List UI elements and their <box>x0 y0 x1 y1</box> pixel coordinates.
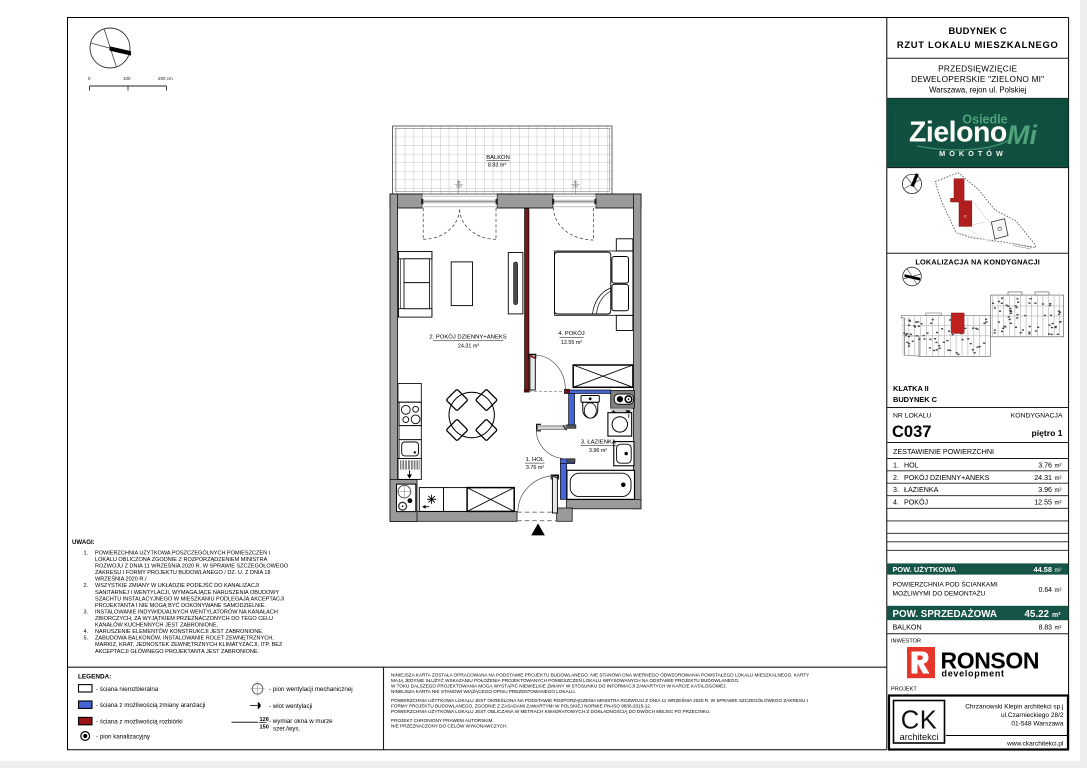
svg-text:Mi: Mi <box>1007 120 1037 150</box>
svg-text:230: 230 <box>456 185 462 189</box>
svg-text:W TOKU DALSZEGO PROJEKTOWANIA: W TOKU DALSZEGO PROJEKTOWANIA MOGĄ WYSTĄ… <box>391 683 727 689</box>
svg-text:NR LOKALU: NR LOKALU <box>893 413 932 420</box>
svg-text:INWESTOR: INWESTOR <box>891 639 921 645</box>
svg-text:POWIERZCHNIA POD ŚCIANKAMI: POWIERZCHNIA POD ŚCIANKAMI <box>893 580 998 589</box>
svg-text:piętro 1: piętro 1 <box>1031 428 1062 438</box>
svg-text:m²: m² <box>1055 463 1062 469</box>
svg-text:- pion kanalizacyjny: - pion kanalizacyjny <box>96 734 151 741</box>
svg-text:Chrzanowski Klepin architekci: Chrzanowski Klepin architekci sp.j <box>965 704 1063 711</box>
svg-text:m²: m² <box>1055 488 1062 494</box>
svg-text:NARUSZENIE ELEMENTÓW KONSTRUKC: NARUSZENIE ELEMENTÓW KONSTRUKCJI JEST ZA… <box>95 628 264 635</box>
svg-text:NIE PRZEZNACZONY DO CELÓW WYKO: NIE PRZEZNACZONY DO CELÓW WYKONAWCZYCH. <box>391 723 508 729</box>
svg-text:3.76 m²: 3.76 m² <box>526 465 544 471</box>
svg-text:DEWELOPERSKIE "ZIELONO MI": DEWELOPERSKIE "ZIELONO MI" <box>911 74 1044 84</box>
svg-text:8.83 m²: 8.83 m² <box>488 162 506 168</box>
svg-text:3.96 m²: 3.96 m² <box>589 448 607 454</box>
svg-text:1.: 1. <box>893 461 899 469</box>
svg-text:01-548 Warszawa: 01-548 Warszawa <box>1011 721 1064 728</box>
svg-text:SANITARNEJ I WENTYLACJI, WYMAG: SANITARNEJ I WENTYLACJI, WYMAGAJĄCE NARU… <box>95 590 279 596</box>
svg-text:100: 100 <box>123 76 131 81</box>
svg-text:PROJEKT: PROJEKT <box>891 687 917 693</box>
svg-text:3.: 3. <box>893 486 899 494</box>
svg-text:- ściana nierozbieralna: - ściana nierozbieralna <box>96 686 159 693</box>
svg-text:- pion wentylacji mechanicznej: - pion wentylacji mechanicznej <box>269 686 353 693</box>
svg-text:CK: CK <box>901 707 937 735</box>
svg-text:200 cm: 200 cm <box>158 76 173 81</box>
svg-text:BALKON: BALKON <box>486 155 510 161</box>
svg-text:- ściana z możliwością rozbiór: - ściana z możliwością rozbiórki <box>96 719 183 726</box>
svg-text:LOKALU OBLICZONA ZGODNIE Z ROZ: LOKALU OBLICZONA ZGODNIE Z ROZPORZĄDZENI… <box>95 557 268 563</box>
svg-text:0.64: 0.64 <box>1039 587 1053 594</box>
svg-text:12.55: 12.55 <box>1034 499 1052 507</box>
svg-text:WSZYSTKIE ZMIANY W UKŁADZIE PO: WSZYSTKIE ZMIANY W UKŁADZIE PODEJŚĆ DO K… <box>95 581 260 589</box>
svg-text:KONDYGNACJA: KONDYGNACJA <box>1011 413 1063 420</box>
svg-text:FORMY PROJEKTU BUDOWLANEGO, ZG: FORMY PROJEKTU BUDOWLANEGO, ZGODNIE Z ZA… <box>391 704 651 709</box>
svg-text:POW. UŻYTKOWA: POW. UŻYTKOWA <box>893 565 957 574</box>
svg-text:- wymiar okna w murze: - wymiar okna w murze <box>269 718 333 725</box>
svg-text:4. POKÓJ: 4. POKÓJ <box>558 330 585 337</box>
svg-text:ul.Czarnieckiego 28/2: ul.Czarnieckiego 28/2 <box>1001 712 1064 719</box>
svg-text:C037: C037 <box>892 423 931 441</box>
svg-text:development: development <box>942 669 1005 679</box>
svg-text:MOŻLIWYMI DO DEMONTAŻU: MOŻLIWYMI DO DEMONTAŻU <box>893 589 986 598</box>
svg-text:3.96: 3.96 <box>1038 486 1052 494</box>
svg-text:4.: 4. <box>84 629 89 635</box>
svg-text:24.31: 24.31 <box>1034 474 1052 482</box>
svg-text:POWIERZCHNIA UŻYTKOWA LOKALU J: POWIERZCHNIA UŻYTKOWA LOKALU JEST OBLICZ… <box>391 707 711 714</box>
svg-text:MARKIZ, KRAT, JEDNOSTEK ZEWNĘT: MARKIZ, KRAT, JEDNOSTEK ZEWNĘTRZNYCH KLI… <box>95 642 283 648</box>
svg-text:m²: m² <box>1055 501 1062 507</box>
svg-text:2.: 2. <box>84 583 89 589</box>
svg-text:architekci: architekci <box>900 732 939 742</box>
svg-text:12.55 m²: 12.55 m² <box>561 340 582 346</box>
svg-text:5.: 5. <box>84 636 89 642</box>
svg-text:AKCEPTACJI GŁÓWNEGO PROJEKTANT: AKCEPTACJI GŁÓWNEGO PROJEKTANTA JEST ZAB… <box>95 648 260 655</box>
svg-text:m²: m² <box>1052 612 1061 619</box>
svg-text:BALKON: BALKON <box>893 623 922 632</box>
svg-text:4.: 4. <box>893 499 899 507</box>
svg-text:POWIERZCHNIA UŻYTKOWA POSZCZEG: POWIERZCHNIA UŻYTKOWA POSZCZEGÓLNYCH POM… <box>95 550 271 557</box>
svg-text:m²: m² <box>1055 588 1062 594</box>
svg-text:44.58: 44.58 <box>1034 565 1053 574</box>
svg-text:ŁAZIENKA: ŁAZIENKA <box>904 486 939 494</box>
svg-text:m²: m² <box>1055 476 1062 482</box>
svg-text:- ściana z możliwością zmiany: - ściana z możliwością zmiany aranżacji <box>96 702 205 709</box>
svg-text:www.ckarchitekci.pl: www.ckarchitekci.pl <box>1006 741 1064 748</box>
svg-text:MOKOTÓW: MOKOTÓW <box>939 149 1007 158</box>
svg-text:2.: 2. <box>893 474 899 482</box>
svg-text:SZACHTU INSTALACYJNEGO W MIESZ: SZACHTU INSTALACYJNEGO W MIESZKANIU PODL… <box>95 596 285 602</box>
svg-text:3.: 3. <box>84 610 89 616</box>
svg-text:BUDYNEK C: BUDYNEK C <box>893 395 938 404</box>
svg-text:24.31 m²: 24.31 m² <box>458 344 479 350</box>
svg-text:ZAKRESU I FORMY PROJEKTU BUDOW: ZAKRESU I FORMY PROJEKTU BUDOWLANEGO / D… <box>95 570 271 576</box>
svg-text:PROJEKTANTA I NIE MOGĄ BYĆ DOK: PROJEKTANTA I NIE MOGĄ BYĆ DOKONYWANE SA… <box>95 602 266 609</box>
svg-text:45.22: 45.22 <box>1024 609 1049 620</box>
svg-text:POWIERZCHNIA UŻYTKOWA LOKALU J: POWIERZCHNIA UŻYTKOWA LOKALU JEST OKREŚL… <box>391 696 808 703</box>
svg-text:3.76: 3.76 <box>1038 461 1052 469</box>
svg-text:PRZEDSIĘWZIĘCIE: PRZEDSIĘWZIĘCIE <box>938 64 1017 74</box>
svg-text:8.83: 8.83 <box>1039 625 1053 632</box>
svg-text:POKÓJ DZIENNY+ANEKS: POKÓJ DZIENNY+ANEKS <box>904 473 990 482</box>
svg-text:INSTALOWANIE INDYWIDUALNYCH WE: INSTALOWANIE INDYWIDUALNYCH WENTYLATORÓW… <box>95 609 278 616</box>
svg-text:HOL: HOL <box>904 461 919 469</box>
svg-text:1. HOL: 1. HOL <box>525 457 544 463</box>
svg-text:Zielono: Zielono <box>909 117 1007 149</box>
svg-text:m²: m² <box>1055 568 1062 574</box>
svg-text:szer./wys.: szer./wys. <box>273 725 300 732</box>
svg-text:ZESTAWIENIE POWIERZCHNI: ZESTAWIENIE POWIERZCHNI <box>893 447 994 456</box>
svg-text:NINIEJSZA KARTA NIE STANOWI WI: NINIEJSZA KARTA NIE STANOWI WIĄŻĄCEGO OP… <box>391 688 576 694</box>
svg-text:WRZEŚNIA 2020 R./: WRZEŚNIA 2020 R./ <box>95 575 147 583</box>
svg-text:LOKALIZACJA NA KONDYGNACJI: LOKALIZACJA NA KONDYGNACJI <box>915 258 1040 267</box>
svg-text:POKÓJ: POKÓJ <box>904 498 928 507</box>
svg-text:MAJĄ JEDYNIE SŁUŻYĆ WSKAZANIU: MAJĄ JEDYNIE SŁUŻYĆ WSKAZANIU POŁOŻENIA … <box>391 677 739 683</box>
svg-text:POW. SPRZEDAŻOWA: POW. SPRZEDAŻOWA <box>893 609 998 620</box>
svg-text:- wlot wentylacji: - wlot wentylacji <box>269 703 312 710</box>
svg-text:UWAGI:: UWAGI: <box>72 539 95 546</box>
svg-text:PROJEKT CHRONIONY PRAWEM AUTOR: PROJEKT CHRONIONY PRAWEM AUTORSKIM. <box>391 718 494 723</box>
svg-text:Warszawa, rejon ul. Polskiej: Warszawa, rejon ul. Polskiej <box>929 86 1026 95</box>
svg-text:RZUT LOKALU MIESZKALNEGO: RZUT LOKALU MIESZKALNEGO <box>897 39 1059 50</box>
svg-text:KANAŁÓW KUCHENNYCH JEST ZABRON: KANAŁÓW KUCHENNYCH JEST ZABRONIONE. <box>95 622 219 629</box>
svg-text:LEGENDA:: LEGENDA: <box>78 674 111 681</box>
svg-text:ZABUDOWA BALKONÓW, INSTALOWANI: ZABUDOWA BALKONÓW, INSTALOWANIE ROLET ZE… <box>95 635 274 642</box>
svg-text:KLATKA II: KLATKA II <box>893 384 929 393</box>
svg-text:BUDYNEK C: BUDYNEK C <box>948 25 1006 36</box>
svg-text:ROZWOJU Z DNIA 11 WRZEŚNIA 202: ROZWOJU Z DNIA 11 WRZEŚNIA 2020 R. W SPR… <box>95 562 289 570</box>
svg-text:3. ŁAZIENKA: 3. ŁAZIENKA <box>581 440 616 446</box>
svg-text:2. POKÓJ DZIENNY+ANEKS: 2. POKÓJ DZIENNY+ANEKS <box>429 334 506 341</box>
svg-text:230: 230 <box>573 185 579 189</box>
svg-text:150: 150 <box>260 725 269 731</box>
svg-text:1.: 1. <box>84 551 89 557</box>
svg-text:NINIEJSZA KARTA ZOSTAŁA OPRACO: NINIEJSZA KARTA ZOSTAŁA OPRACOWANA NA PO… <box>391 673 809 678</box>
svg-text:ZBIORCZYCH, ZA WYJĄTKIEM PRZEZ: ZBIORCZYCH, ZA WYJĄTKIEM PRZEZNACZONYCH … <box>95 616 273 622</box>
svg-text:m²: m² <box>1055 626 1062 632</box>
